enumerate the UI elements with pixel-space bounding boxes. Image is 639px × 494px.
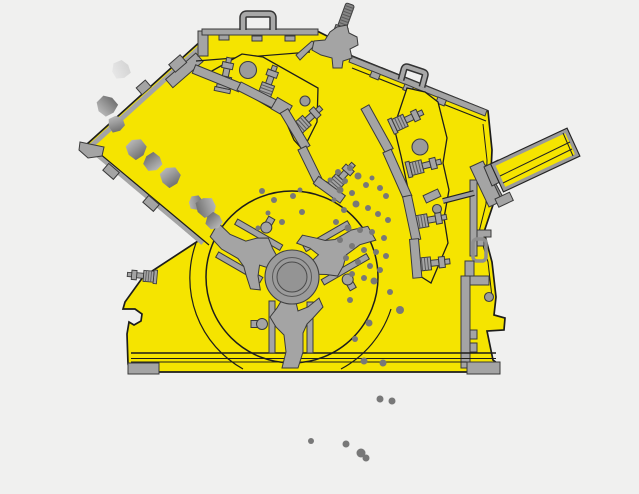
crushed-particle [381, 235, 387, 241]
channel-clip [470, 330, 477, 339]
crushed-particle [377, 396, 384, 403]
feed-rock [108, 58, 134, 83]
crushed-particle [345, 225, 352, 232]
crushed-particle [353, 201, 360, 208]
channel-stub [465, 261, 474, 276]
crushed-particle [377, 267, 383, 273]
crushed-particle [298, 188, 303, 193]
crushed-particle [383, 193, 389, 199]
crusher-illustration [0, 0, 639, 494]
crushed-particle [361, 358, 368, 365]
crushed-particle [375, 211, 381, 217]
crushed-particle [387, 289, 393, 295]
falling-particles [308, 396, 396, 462]
crushed-particle [335, 169, 341, 175]
crushed-particle [361, 247, 367, 253]
crushed-particle [343, 255, 349, 261]
crushed-particle [377, 185, 383, 191]
crushed-particle [363, 182, 369, 188]
cover-rail-tab [219, 35, 229, 40]
crushed-particle [385, 217, 391, 223]
crushed-particle [271, 197, 277, 203]
crushed-particle [332, 198, 337, 203]
crushed-particle [352, 336, 358, 342]
right-foot-pad [467, 362, 500, 374]
feed-rock [96, 96, 118, 117]
crushed-particle [333, 219, 339, 225]
crushed-particle [266, 211, 271, 216]
crushed-particle [365, 205, 371, 211]
crushed-particle [328, 178, 333, 183]
crushed-particle [343, 441, 350, 448]
crushed-particle [367, 263, 373, 269]
crushed-particle [361, 275, 367, 281]
crushed-particle [342, 178, 348, 184]
crushed-particle [279, 219, 285, 225]
crushed-particle [347, 165, 353, 171]
cover-rail-tab [285, 36, 295, 41]
crushed-particle [349, 243, 355, 249]
crushed-particle [357, 227, 363, 233]
channel-clip [470, 343, 477, 352]
crushed-particle [341, 207, 347, 213]
crushed-particle [355, 173, 362, 180]
crushed-particle [349, 271, 355, 277]
apron-pivot-hole [240, 62, 257, 79]
crushed-particle [290, 193, 296, 199]
lifting-handle-icon [243, 14, 273, 30]
apron-pivot-hole [412, 139, 428, 155]
crushed-particle [383, 253, 389, 259]
crushed-particle [337, 187, 344, 194]
crushed-particle [366, 320, 373, 327]
crushed-particle [349, 190, 355, 196]
apron-hole [300, 96, 310, 106]
crushed-particle [389, 398, 396, 405]
crushed-particle [396, 306, 404, 314]
crushed-particle [337, 237, 343, 243]
hub-shaft [277, 262, 307, 292]
crushed-particle [369, 229, 375, 235]
cover-rail [202, 29, 318, 35]
crushed-particle [308, 438, 314, 444]
crushed-particle [370, 176, 375, 181]
crushed-particle [363, 455, 370, 462]
crushed-particle [355, 259, 361, 265]
crushed-particle [371, 278, 378, 285]
crushed-particle [256, 226, 261, 231]
left-foot-pad [128, 363, 159, 374]
crushed-particle [347, 297, 353, 303]
crushed-particle [299, 209, 305, 215]
cover-rail-tab [252, 36, 262, 41]
wall-channel [461, 276, 470, 368]
impact-crusher-diagram [0, 0, 639, 494]
wall-hole [485, 293, 494, 302]
crushed-particle [373, 249, 379, 255]
crushed-particle [380, 360, 387, 367]
cylinder-body [494, 131, 578, 189]
crushed-particle [259, 188, 265, 194]
